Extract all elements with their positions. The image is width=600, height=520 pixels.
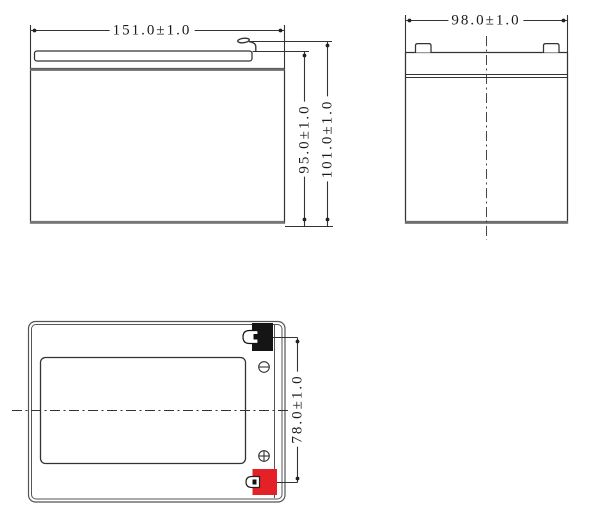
dim-arrow-dot xyxy=(279,29,283,33)
dim-text-total-height: 101.0±1.0 xyxy=(319,97,336,182)
tab-slot xyxy=(253,480,257,485)
dim-arrow-dot xyxy=(326,218,330,222)
dim-text-case-height: 95.0±1.0 xyxy=(296,101,313,176)
dim-text-front-length: 151.0±1.0 xyxy=(110,22,195,39)
top-view xyxy=(12,322,299,503)
positive-terminal-icon xyxy=(259,451,270,462)
dim-arrow-dot xyxy=(33,29,37,33)
battery-lid-strip xyxy=(35,51,253,61)
front-view xyxy=(30,25,333,227)
dim-arrow-dot xyxy=(296,477,300,481)
dim-text-terminal-spacing: 78.0±1.0 xyxy=(289,371,306,446)
dim-arrow-dot xyxy=(296,340,300,344)
side-view xyxy=(405,15,568,240)
dim-arrow-dot xyxy=(562,19,566,23)
terminal-cap-icon xyxy=(416,44,432,53)
negative-terminal-icon xyxy=(259,362,270,373)
dim-text-side-width: 98.0±1.0 xyxy=(448,12,523,29)
terminal-cap-icon xyxy=(544,44,560,53)
dim-arrow-dot xyxy=(303,218,307,222)
dim-arrow-dot xyxy=(408,19,412,23)
tab-slot xyxy=(254,334,258,340)
battery-outline-drawing: 151.0±1.0 95.0±1.0 101.0±1.0 98.0±1.0 78… xyxy=(0,0,600,520)
terminal-blade-side-icon xyxy=(237,38,255,52)
battery-body-outline xyxy=(31,69,285,224)
dim-arrow-dot xyxy=(303,54,307,58)
dim-arrow-dot xyxy=(326,44,330,48)
